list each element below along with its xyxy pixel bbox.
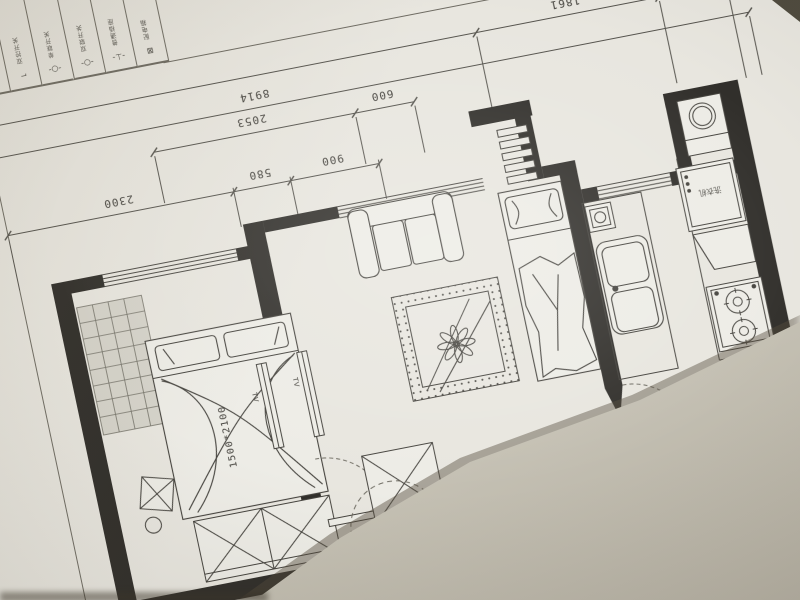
lamp-symbol-icon: -○- — [38, 55, 74, 85]
legend-label: 双控开关 — [1, 0, 26, 65]
switch-symbol-icon: ⌐ — [6, 61, 42, 91]
legend-label: 普通插座 — [95, 0, 120, 46]
rug — [391, 277, 519, 401]
paper-edge-shadow — [0, 592, 268, 600]
window-bedroom — [102, 249, 238, 287]
corner-cabinet — [693, 224, 756, 272]
socket-symbol-icon: -⊥- — [101, 43, 137, 73]
legend-label: 双联开关 — [64, 0, 89, 53]
legend-label: 配电箱 — [127, 0, 152, 40]
floor-plan-photo: 单控开关 ⌐ 双控开关 ⌐ 单联开关 -○- 双联开关 -○- 普通插座 -⊥-… — [0, 0, 800, 600]
distribution-box-icon: ⊠ — [132, 36, 168, 66]
lamp-symbol-icon: -○- — [69, 49, 105, 79]
window-kitchen — [597, 173, 672, 199]
gas-meter — [585, 202, 616, 232]
legend-label: 单联开关 — [32, 0, 57, 59]
sofa — [346, 190, 465, 279]
